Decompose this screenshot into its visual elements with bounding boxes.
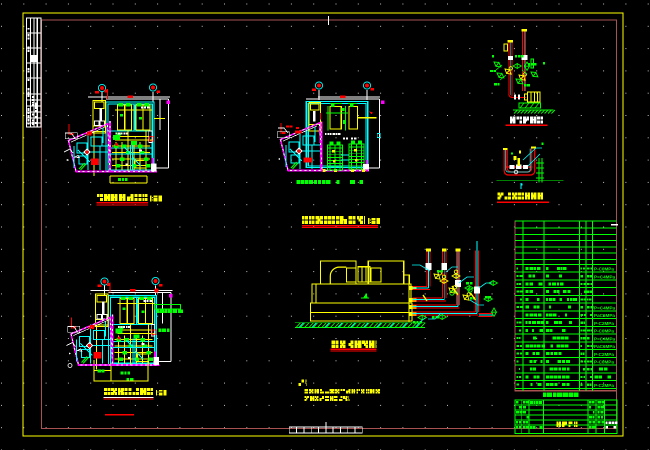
svg-text:P-C2MPa: P-C2MPa <box>594 321 614 326</box>
svg-text:P=C4MPa: P=C4MPa <box>594 305 616 310</box>
svg-text:P=C4MPa: P=C4MPa <box>594 336 616 341</box>
svg-text:P-C2MPa: P-C2MPa <box>594 383 614 388</box>
svg-text:P-C0MPa: P-C0MPa <box>594 329 614 334</box>
svg-text:PaC6MPa: PaC6MPa <box>594 344 615 349</box>
svg-text:P-C2MPa: P-C2MPa <box>594 352 614 357</box>
svg-text:P=C4MPa: P=C4MPa <box>594 274 616 279</box>
svg-text:PaC6MPa: PaC6MPa <box>594 313 615 318</box>
svg-text:P-C0MPa: P-C0MPa <box>594 360 614 365</box>
svg-text:P-C0MPa: P-C0MPa <box>594 267 614 272</box>
